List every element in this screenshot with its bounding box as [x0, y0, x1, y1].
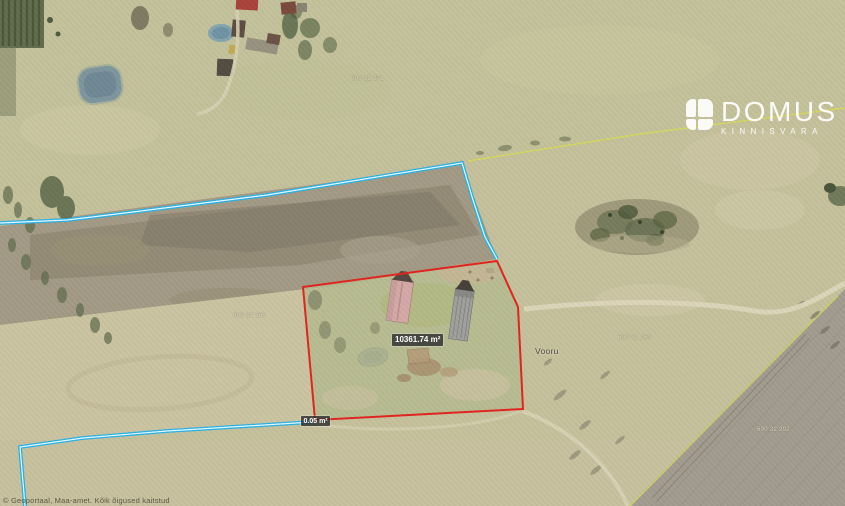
place-name-label: Vooru	[535, 346, 559, 356]
logo-window-pane	[686, 99, 696, 117]
aerial-map-svg	[0, 0, 845, 506]
map-attribution: © Geoportaal, Maa-amet. Kõik õigused kai…	[3, 496, 170, 505]
logo-window-pane	[698, 119, 713, 130]
cadastral-number-label: 600 32 971	[351, 76, 384, 82]
cadastral-number-label: 600 32 260	[233, 313, 266, 319]
map-canvas[interactable]: 600 32 971 600 32 260 600 32 160 600 32 …	[0, 0, 845, 506]
segment-measurement-label: 0.05 m²	[301, 416, 330, 426]
domus-logo: DOMUS KINNISVARA	[686, 99, 838, 136]
logo-subtitle: KINNISVARA	[721, 127, 838, 136]
cadastral-number-label: 600 32 292	[757, 427, 790, 433]
logo-window-pane	[698, 99, 713, 117]
domus-window-icon	[686, 99, 715, 132]
logo-window-pane	[686, 119, 696, 130]
area-measurement-label: 10361.74 m²	[392, 334, 443, 346]
logo-text: DOMUS KINNISVARA	[721, 99, 838, 136]
logo-name: DOMUS	[721, 99, 838, 124]
tree-island	[575, 199, 699, 255]
cadastral-number-label: 600 32 160	[618, 335, 651, 341]
